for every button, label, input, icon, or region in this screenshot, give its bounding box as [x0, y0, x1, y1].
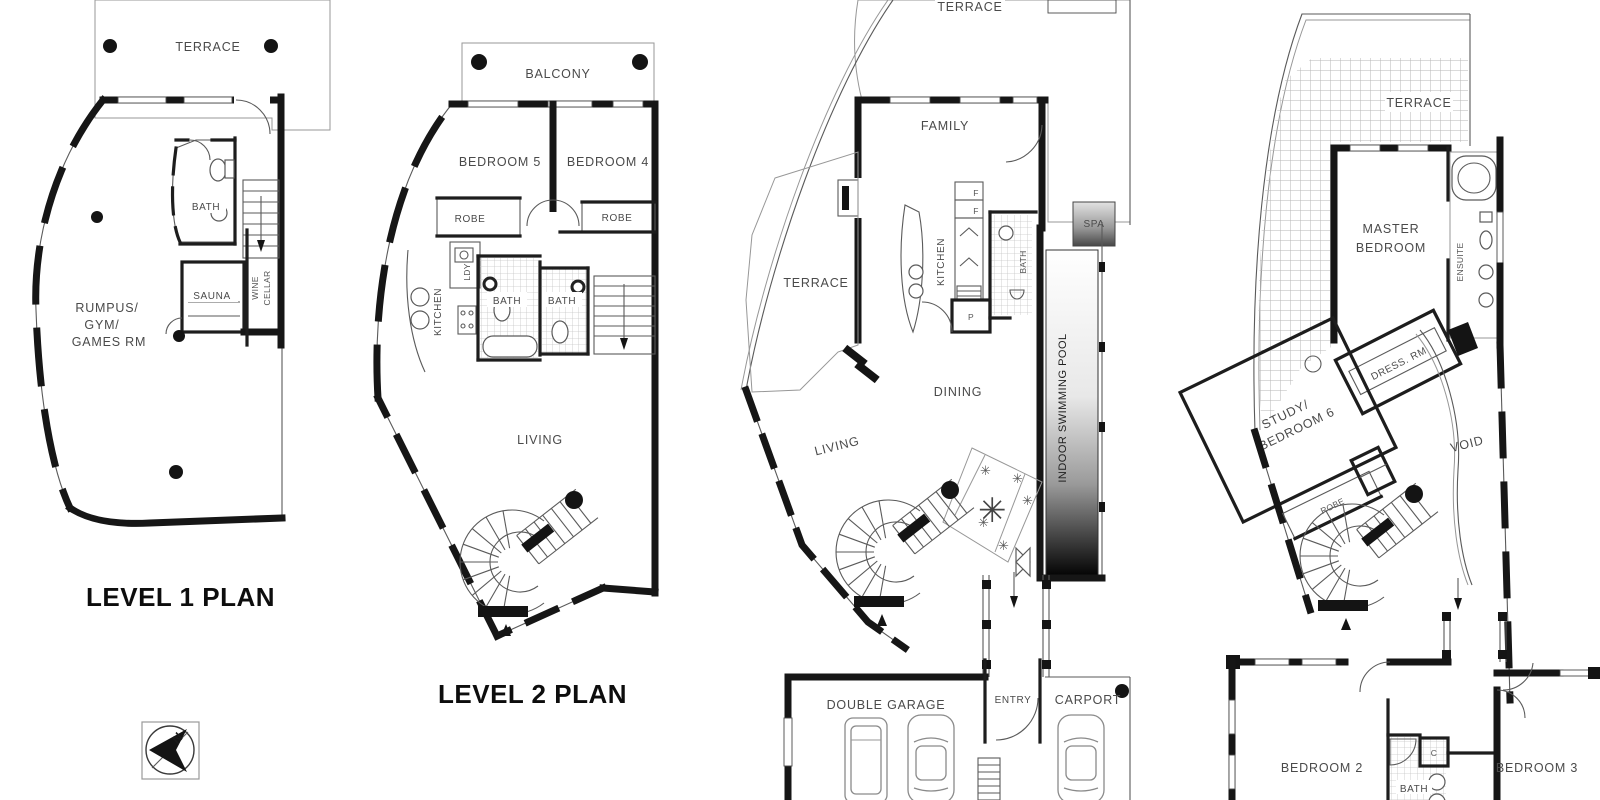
sink-icon: [909, 265, 923, 279]
ensuite: ENSUITE: [1450, 140, 1503, 345]
cistern-icon: [1480, 212, 1492, 222]
carport-label: CARPORT: [1055, 693, 1122, 707]
svg-text:RUMPUS/: RUMPUS/: [75, 301, 138, 315]
svg-text:GYM/: GYM/: [84, 318, 119, 332]
level1-bath: BATH: [173, 138, 235, 244]
living-label: LIVING: [813, 434, 861, 459]
bedroom5-label: BEDROOM 5: [459, 155, 541, 169]
svg-text:GAMES RM: GAMES RM: [72, 335, 146, 349]
laundry-label: LDY: [462, 263, 472, 280]
level2-bath-right: BATH: [542, 268, 588, 354]
kitchen-label: KITCHEN: [936, 238, 947, 286]
toilet-icon: [999, 226, 1013, 240]
car-icon: [908, 715, 954, 800]
level1-terrace: TERRACE: [95, 0, 330, 130]
level1-title: LEVEL 1 PLAN: [86, 582, 275, 612]
terrace-label: TERRACE: [1386, 96, 1451, 110]
van-icon: [845, 718, 887, 800]
door-arc: [1497, 690, 1525, 718]
cistern-icon: [225, 160, 234, 178]
closet: [1351, 447, 1395, 494]
sink-icon: [909, 284, 923, 298]
spiral-stair: [836, 479, 974, 626]
planter: ✳ ✳ ✳ ✳ ✳ ✳: [943, 448, 1042, 562]
level2-plan: BALCONY BEDROOM 5 BEDROOM 4 ROBE ROBE LD…: [377, 43, 655, 709]
toilet-icon: [210, 159, 226, 181]
sauna-label: SAUNA: [193, 291, 230, 302]
bath-label: BATH: [192, 202, 220, 213]
level3-bath: BATH: [990, 212, 1036, 318]
living-label: LIVING: [517, 433, 563, 447]
car-icon: [1058, 715, 1104, 800]
robe: ROBE: [1283, 471, 1382, 538]
column-dot: [264, 39, 278, 53]
freezer-label: F: [973, 206, 979, 216]
bedroom3-label: BEDROOM 3: [1496, 761, 1578, 775]
entry-label: ENTRY: [995, 695, 1032, 706]
floorplan-sheet: TERRACE BATH: [0, 0, 1600, 800]
terrace-top-label: TERRACE: [937, 0, 1002, 14]
indoor-pool: [1046, 250, 1098, 575]
level2-stairs: [594, 276, 655, 354]
cupboard-label: C: [1431, 748, 1437, 758]
garage-block: DOUBLE GARAGE ENTRY CARPORT: [784, 660, 1130, 800]
terrace-left-label: TERRACE: [783, 276, 848, 290]
svg-text:✳: ✳: [1022, 493, 1033, 508]
fridge-label: F: [973, 188, 979, 198]
level3-terrace-top: TERRACE: [855, 0, 1130, 222]
level3-spa-pool: SPA INDOOR SWIMMING POOL: [1040, 0, 1130, 578]
entry-steps: [978, 758, 1000, 800]
bedroom3: BEDROOM 3: [1496, 663, 1600, 800]
svg-text:✳: ✳: [998, 538, 1009, 553]
bath-left-label: BATH: [493, 296, 521, 307]
bedroom2-label: BEDROOM 2: [1281, 761, 1363, 775]
terrace-label: TERRACE: [175, 40, 240, 54]
column-dot: [103, 39, 117, 53]
spa-label: SPA: [1083, 219, 1104, 230]
bathtub-icon: [483, 336, 537, 357]
kitchen-label: KITCHEN: [433, 288, 444, 336]
pool-label: INDOOR SWIMMING POOL: [1057, 333, 1069, 482]
door-arc: [190, 140, 210, 160]
column-dot: [169, 465, 183, 479]
level2-outline: [377, 101, 655, 636]
large-plant-icon: ✳: [978, 492, 1007, 530]
tap-icon: [572, 281, 584, 293]
spiral-stair: [460, 489, 598, 636]
toilet-icon: [1479, 293, 1493, 307]
dining-label: DINING: [934, 385, 983, 399]
column-dot: [91, 211, 103, 223]
void-label: VOID: [1449, 433, 1485, 455]
svg-text:✳: ✳: [1012, 471, 1023, 486]
master-label-line1: MASTER: [1363, 222, 1420, 236]
level3-plan: TERRACE TERRACE FAMILY KITCHEN F F: [741, 0, 1130, 800]
level2-bath-left: BATH: [478, 256, 540, 360]
wine-cellar-label-line2: CELLAR: [262, 271, 272, 306]
door-arc: [1360, 662, 1390, 692]
door-arc: [1006, 125, 1042, 162]
level2-bedrooms: BEDROOM 5 BEDROOM 4 ROBE ROBE: [437, 104, 655, 236]
bedroom4-label: BEDROOM 4: [567, 155, 649, 169]
floorplan-canvas: TERRACE BATH: [0, 0, 1600, 800]
level3-kitchen: KITCHEN F F P: [901, 182, 990, 332]
bath-label: BATH: [1400, 784, 1428, 795]
sink-icon: [411, 311, 429, 329]
robe-right-label: ROBE: [602, 213, 633, 224]
svg-text:✳: ✳: [980, 463, 991, 478]
pantry-label: P: [968, 312, 974, 322]
level4-corridor: [1442, 578, 1507, 662]
north-compass: N: [142, 722, 199, 779]
toilet-icon: [552, 321, 568, 343]
level1-rumpus: RUMPUS/ GYM/ GAMES RM: [72, 301, 146, 349]
bath-label: BATH: [1018, 250, 1028, 273]
double-garage-label: DOUBLE GARAGE: [827, 698, 946, 712]
level2-laundry: LDY: [450, 242, 480, 288]
sink-icon: [411, 288, 429, 306]
level4-bath: C BATH: [1388, 700, 1497, 800]
toilet-icon: [1479, 265, 1493, 279]
ensuite-label: ENSUITE: [1455, 243, 1465, 282]
door-arc: [922, 302, 952, 332]
level2-balcony: BALCONY: [462, 43, 654, 107]
robe-left-label: ROBE: [455, 214, 486, 225]
bath-right-label: BATH: [548, 296, 576, 307]
level4-plan: TERRACE MASTER BEDROOM ENSUITE DRESS. RM…: [1180, 14, 1600, 800]
family-label: FAMILY: [921, 119, 969, 133]
balcony-label: BALCONY: [525, 67, 590, 81]
tap-icon: [484, 278, 496, 290]
level1-plan: TERRACE BATH: [36, 0, 330, 779]
level2-title: LEVEL 2 PLAN: [438, 679, 627, 709]
master-label-line2: BEDROOM: [1356, 241, 1426, 255]
wine-cellar-label-line1: WINE: [250, 276, 260, 299]
basin-icon: [1480, 231, 1492, 249]
